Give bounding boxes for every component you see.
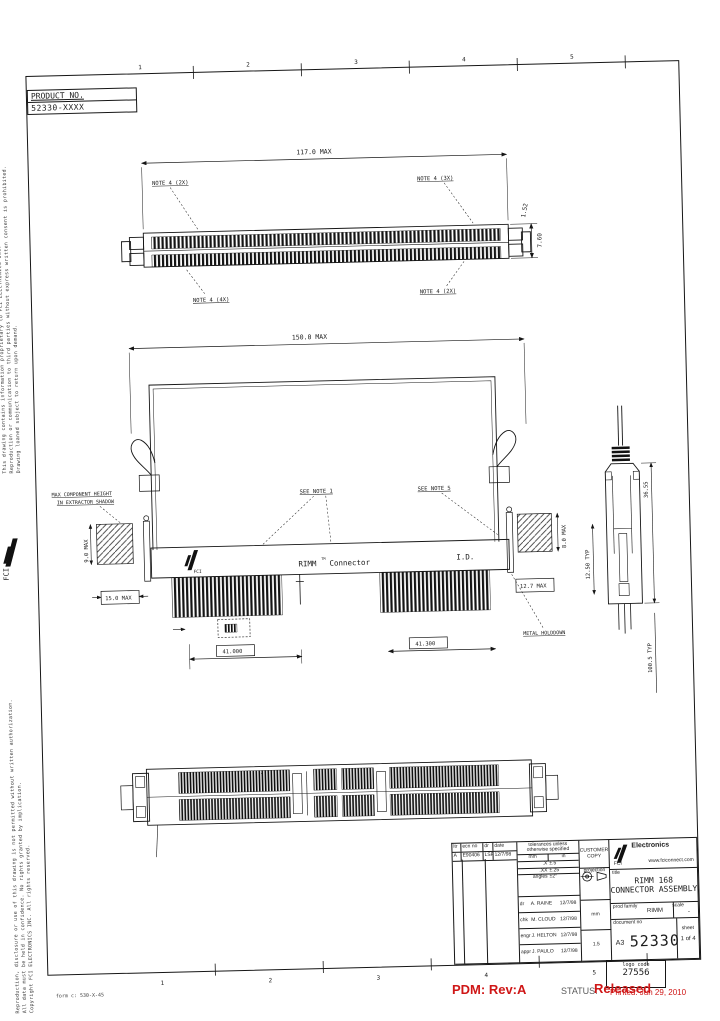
top-view: 117.0 MAX 7.60 1.52 NOTE 4 (2X) NOTE 4 (… (119, 142, 545, 305)
brand-rimm: RIMM (298, 559, 317, 568)
brand-tm: TM (321, 557, 325, 561)
company-cell: Electronics FCI www.fciconnect.com (609, 838, 698, 870)
units-cell: mm (581, 900, 612, 931)
rev-header-ltr: ltr (452, 844, 461, 852)
see-note-5-label: SEE NOTE 5 (418, 486, 451, 493)
appr-name: J. HELTON (531, 933, 560, 939)
zone-label: 4 (484, 972, 488, 979)
note-label: NOTE 4 (2X) (420, 289, 457, 296)
id-marking: I.D. (456, 552, 474, 561)
appr-role: engr (520, 934, 532, 940)
note-label: NOTE 4 (4X) (193, 297, 230, 304)
fci-body-logo-text: FCI (193, 569, 202, 575)
appr-name: J. PAULO (532, 949, 561, 955)
metal-holddown-label: METAL HOLDDOWN (523, 630, 565, 637)
third-angle-projection-icon (580, 868, 608, 885)
company-name: Electronics (631, 842, 669, 851)
fci-body-logo-icon: FCI (184, 550, 202, 575)
tol-angles-value: ±2° (550, 874, 580, 880)
appr-name: A. RAINE (531, 901, 560, 907)
left-width-dim: 15.0 MAX (105, 596, 132, 603)
form-note: form c: 530-X-45 (56, 992, 104, 999)
zone-label: 3 (376, 975, 380, 982)
document-no-label: document no (613, 920, 642, 926)
zone-label: 3 (354, 59, 358, 66)
dim-41000: 41.000 (222, 649, 242, 655)
approvals-block: dr A. RAINE 12/7/98 chk M. CLOUD 12/7/98… (519, 896, 583, 963)
document-number-cell: document no A3 52330 sheet 1 of 4 (611, 918, 700, 961)
appr-name: M. CLOUD (531, 917, 560, 923)
note-label: NOTE 4 (3X) (417, 176, 454, 183)
dim-41300: 41.300 (415, 641, 435, 647)
revision-table: ltr ecn no dr date A E90406 LSF 12/7/98 (452, 842, 520, 965)
tolerance-block: tolerances unless otherwise specified mm… (517, 841, 580, 897)
sheet-size: A3 (616, 940, 625, 948)
rev-date: 12/7/98 (493, 851, 516, 859)
zone-numbers-top: 1 2 3 4 5 (138, 52, 625, 80)
sheet-value: 1 of 4 (678, 936, 699, 943)
title-label: title (612, 871, 620, 877)
prod-family-label: prod family (613, 904, 638, 910)
company-logo-text: FCI (614, 862, 622, 868)
note-label: NOTE 4 (2X) (152, 180, 189, 187)
appr-date: 12/7/98 (561, 949, 581, 955)
middle-view: 150.0 MAX FCI RIMM TM Connector I.D. SEE… (48, 327, 571, 672)
tolerance-title-2: otherwise specified (527, 847, 570, 853)
tol-angles-label: angles (518, 875, 550, 882)
drawing-sheet: This drawing contains information propri… (0, 0, 720, 1021)
units-value: mm (591, 912, 599, 918)
right-height-dim: 8.0 MAX (562, 524, 569, 548)
customer-copy-2: COPY (587, 854, 601, 860)
middle-view-length-dim: 150.0 MAX (292, 333, 327, 342)
scale-small-value: 1.5 (593, 942, 600, 948)
right-width-dim: 12.7 MAX (520, 583, 547, 590)
top-view-lead-dim: 1.52 (520, 202, 530, 218)
brand-connector: Connector (329, 558, 370, 568)
zone-label: 4 (462, 56, 466, 63)
side-view-dim-a: 36.55 (643, 481, 649, 498)
rev-ecn: E90406 (461, 852, 483, 860)
appr-role: dr (519, 902, 531, 908)
tol-x-value: ±.5 (549, 861, 579, 867)
appr-date: 12/7/98 (560, 916, 580, 922)
zone-label: 5 (592, 969, 596, 976)
max-component-label-2: IN EXTRACTOR SHADOW (57, 499, 115, 506)
side-view: 36.55 12.50 TYP 100.5 TYP (582, 405, 662, 695)
rev-header-dr: dr (483, 843, 493, 851)
top-view-height-dim: 7.60 (536, 233, 543, 248)
left-height-dim: 9.0 MAX (84, 539, 91, 563)
appr-date: 12/7/98 (560, 900, 580, 906)
zone-label: 2 (268, 977, 272, 984)
drawing-title-line2: CONNECTOR ASSEMBLY (610, 884, 697, 895)
scale-small-cell: 1.5 (581, 930, 612, 962)
side-view-dim-c: 100.5 TYP (647, 642, 654, 673)
document-number: 52330 (630, 932, 681, 950)
rev-header-ecn: ecn no (461, 843, 483, 851)
rev-header-date: date (493, 842, 516, 850)
top-view-length-dim: 117.0 MAX (296, 148, 331, 157)
appr-date: 12/7/98 (560, 932, 580, 938)
zone-label: 2 (246, 62, 250, 69)
prod-family-value: RIMM (647, 908, 663, 915)
side-view-dim-b: 12.50 TYP (585, 549, 592, 580)
company-website: www.fciconnect.com (648, 858, 693, 865)
zone-label: 1 (138, 64, 142, 71)
unit-in: in (549, 854, 579, 860)
customer-copy-cell: CUSTOMER COPY (579, 840, 610, 869)
max-component-label-1: MAX COMPONENT HEIGHT (52, 491, 112, 498)
zone-label: 1 (161, 980, 165, 987)
title-block: ltr ecn no dr date A E90406 LSF 12/7/98 … (451, 837, 700, 965)
see-note-1-label: SEE NOTE 1 (300, 489, 333, 496)
projection-cell: projection (580, 868, 611, 901)
brand-marking: RIMM TM Connector I.D. (298, 552, 474, 568)
rev-ltr: A (452, 852, 461, 860)
zone-label: 5 (570, 54, 574, 61)
title-cell: title RIMM 168 CONNECTOR ASSEMBLY (610, 868, 699, 904)
appr-role: chk (519, 918, 531, 924)
sheet-label: sheet (677, 926, 698, 932)
appr-role: appr (520, 950, 532, 956)
scale-value: - (688, 909, 690, 916)
